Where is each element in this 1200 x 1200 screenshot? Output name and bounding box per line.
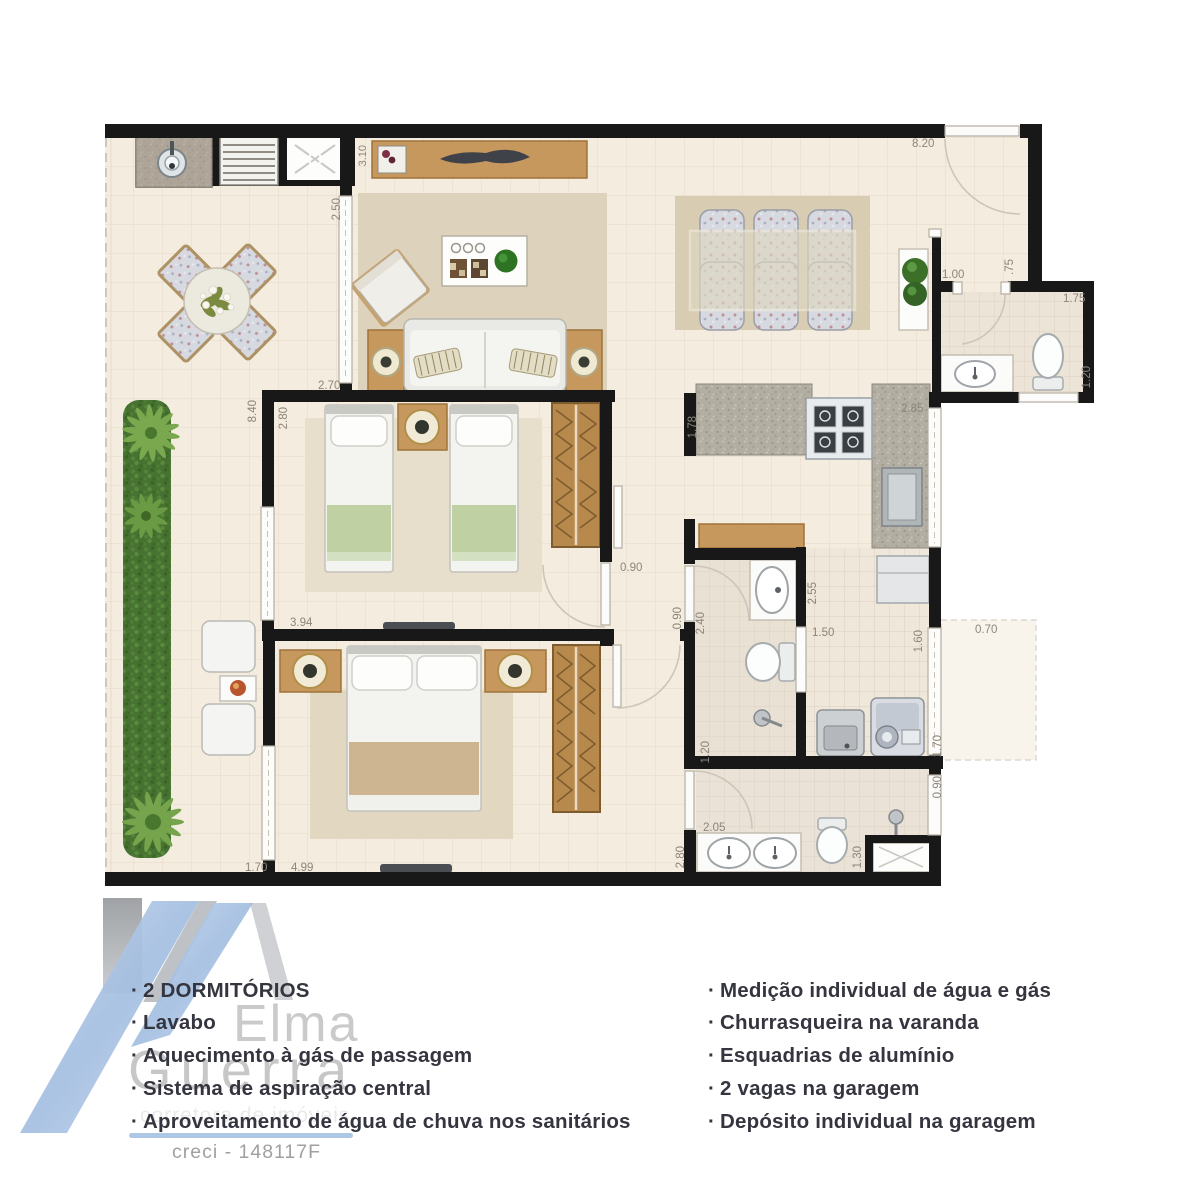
- svg-text:2.05: 2.05: [703, 822, 725, 834]
- svg-text:2 DORMITÓRIOS: 2 DORMITÓRIOS: [143, 978, 310, 1002]
- svg-text:1.70: 1.70: [245, 862, 267, 874]
- svg-text:1.70: 1.70: [932, 735, 944, 757]
- svg-text:Depósito individual na garagem: Depósito individual na garagem: [720, 1110, 1036, 1133]
- svg-text:1.00: 1.00: [942, 269, 964, 281]
- svg-text:4.99: 4.99: [291, 862, 313, 874]
- svg-text:·: ·: [708, 1044, 715, 1067]
- svg-text:Medição individual de água e g: Medição individual de água e gás: [720, 979, 1051, 1002]
- svg-text:·: ·: [708, 1110, 715, 1133]
- svg-text:2.80: 2.80: [278, 407, 290, 429]
- svg-text:Aquecimento à gás de passagem: Aquecimento à gás de passagem: [143, 1044, 472, 1067]
- svg-text:0.90: 0.90: [620, 562, 642, 574]
- svg-text:·: ·: [131, 1044, 138, 1067]
- svg-text:Esquadrias de alumínio: Esquadrias de alumínio: [720, 1044, 955, 1067]
- svg-text:Aproveitamento de água de chuv: Aproveitamento de água de chuva nos sani…: [143, 1110, 631, 1133]
- svg-text:creci - 148117F: creci - 148117F: [172, 1141, 321, 1163]
- svg-text:1.50: 1.50: [812, 627, 834, 639]
- svg-text:8.40: 8.40: [247, 400, 259, 422]
- svg-text:·: ·: [708, 1077, 715, 1100]
- svg-text:1.20: 1.20: [700, 741, 712, 763]
- svg-text:1.60: 1.60: [913, 630, 925, 652]
- svg-text:0.90: 0.90: [672, 607, 684, 629]
- svg-text:·: ·: [708, 979, 715, 1002]
- svg-text:2.55: 2.55: [807, 582, 819, 604]
- svg-text:3.10: 3.10: [357, 145, 369, 166]
- svg-text:Churrasqueira na varanda: Churrasqueira na varanda: [720, 1011, 979, 1034]
- svg-text:2.80: 2.80: [675, 846, 687, 868]
- svg-text:·: ·: [708, 1011, 715, 1034]
- svg-text:0.90: 0.90: [932, 776, 944, 798]
- svg-text:2.70: 2.70: [318, 380, 340, 392]
- svg-text:·: ·: [131, 1077, 138, 1100]
- svg-text:2 vagas na garagem: 2 vagas na garagem: [720, 1077, 920, 1100]
- svg-text:8.20: 8.20: [912, 138, 934, 150]
- svg-text:2.40: 2.40: [695, 612, 707, 634]
- svg-text:1.20: 1.20: [1081, 366, 1093, 388]
- svg-text:Sistema de aspiração central: Sistema de aspiração central: [143, 1077, 431, 1100]
- svg-text:1.75: 1.75: [1063, 293, 1085, 305]
- svg-text:·: ·: [131, 1110, 138, 1133]
- svg-text:.75: .75: [1004, 259, 1016, 275]
- svg-text:·: ·: [131, 1011, 138, 1034]
- svg-text:2.85: 2.85: [901, 403, 923, 415]
- svg-text:·: ·: [131, 979, 138, 1002]
- svg-text:Lavabo: Lavabo: [143, 1011, 216, 1034]
- svg-text:1.78: 1.78: [687, 416, 699, 438]
- svg-text:3.94: 3.94: [290, 617, 313, 629]
- svg-text:2.50: 2.50: [331, 198, 343, 220]
- svg-text:0.70: 0.70: [975, 624, 997, 636]
- svg-text:1.30: 1.30: [852, 846, 864, 868]
